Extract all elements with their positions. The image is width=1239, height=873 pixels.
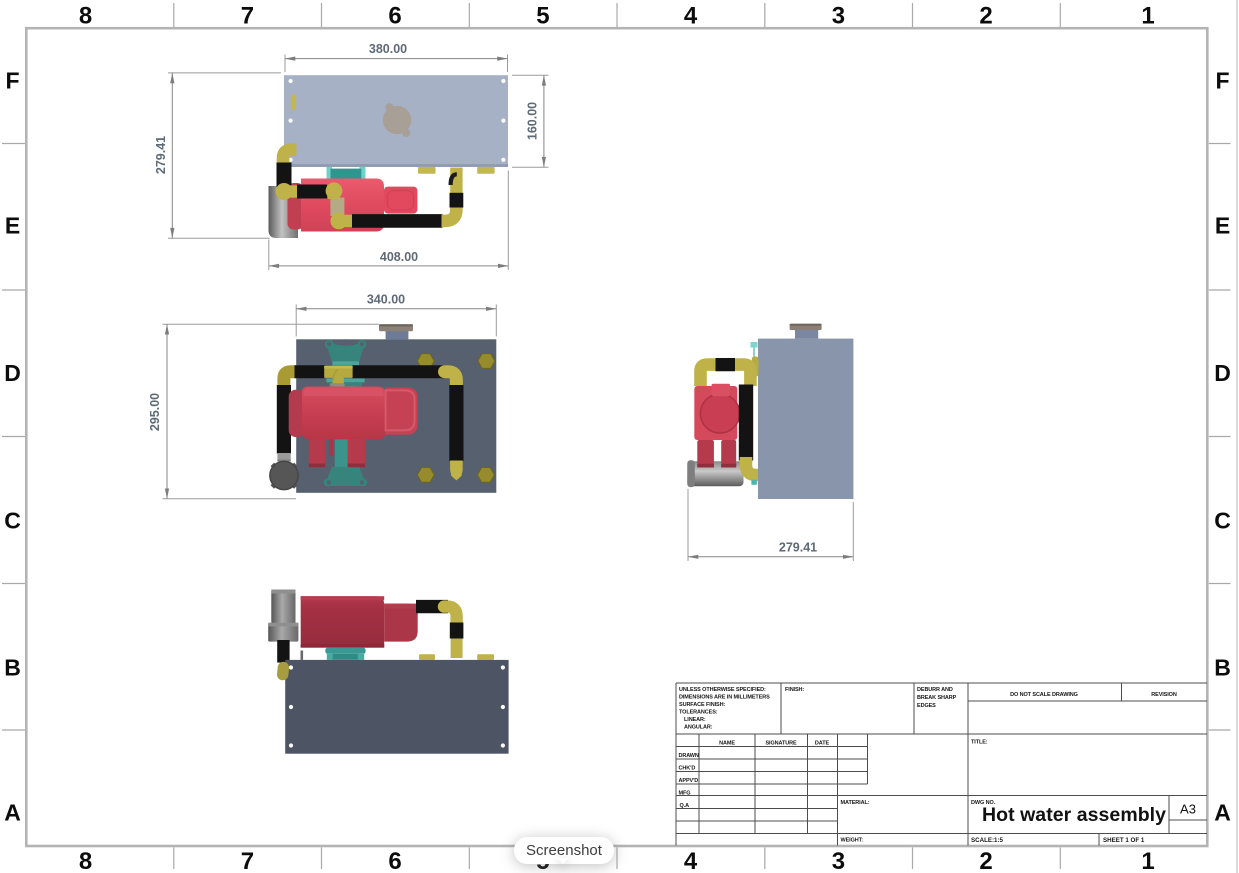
svg-text:1: 1 (1141, 3, 1154, 30)
svg-text:1: 1 (1141, 848, 1154, 873)
svg-text:DRAWN: DRAWN (679, 753, 699, 759)
svg-text:B: B (4, 655, 21, 681)
svg-text:2: 2 (979, 848, 992, 873)
svg-text:6: 6 (388, 848, 401, 873)
svg-text:A: A (1214, 800, 1231, 826)
svg-text:6: 6 (388, 3, 401, 30)
svg-text:BREAK SHARP: BREAK SHARP (917, 695, 957, 701)
svg-text:WEIGHT:: WEIGHT: (841, 838, 864, 844)
svg-text:ANGULAR:: ANGULAR: (684, 725, 713, 731)
svg-text:APPV'D: APPV'D (679, 778, 699, 784)
svg-text:5: 5 (536, 3, 549, 30)
svg-text:4: 4 (684, 848, 698, 873)
svg-text:Hot water assembly: Hot water assembly (982, 804, 1166, 826)
svg-text:NAME: NAME (719, 741, 735, 747)
svg-text:D: D (1214, 360, 1231, 386)
svg-text:SIGNATURE: SIGNATURE (765, 741, 797, 747)
svg-text:160.00: 160.00 (526, 102, 540, 140)
svg-text:LINEAR:: LINEAR: (684, 717, 706, 723)
svg-text:TITLE:: TITLE: (971, 740, 988, 746)
svg-text:A3: A3 (1180, 802, 1196, 817)
svg-text:Q.A: Q.A (680, 803, 690, 809)
svg-text:408.00: 408.00 (380, 250, 418, 264)
svg-text:SURFACE FINISH:: SURFACE FINISH: (679, 702, 725, 708)
svg-text:DEBURR AND: DEBURR AND (917, 687, 953, 693)
svg-text:2: 2 (979, 3, 992, 30)
svg-text:340.00: 340.00 (367, 292, 405, 306)
svg-text:DATE: DATE (815, 741, 830, 747)
svg-text:279.41: 279.41 (154, 136, 168, 174)
svg-text:F: F (1215, 68, 1229, 94)
svg-text:C: C (4, 508, 21, 534)
svg-text:D: D (4, 360, 21, 386)
svg-text:380.00: 380.00 (369, 42, 407, 56)
svg-text:3: 3 (832, 3, 845, 30)
svg-text:EDGES: EDGES (917, 703, 936, 709)
svg-text:279.41: 279.41 (779, 541, 817, 555)
svg-text:3: 3 (832, 848, 845, 873)
svg-text:7: 7 (241, 3, 254, 30)
svg-text:UNLESS OTHERWISE SPECIFIED:: UNLESS OTHERWISE SPECIFIED: (679, 687, 766, 693)
svg-text:MATERIAL:: MATERIAL: (841, 800, 870, 806)
svg-text:REVISION: REVISION (1151, 692, 1177, 698)
svg-text:TOLERANCES:: TOLERANCES: (679, 710, 718, 716)
svg-text:7: 7 (241, 848, 254, 873)
svg-text:A: A (4, 800, 21, 826)
svg-text:SHEET 1 OF 1: SHEET 1 OF 1 (1103, 837, 1145, 844)
svg-text:CHK'D: CHK'D (679, 766, 696, 772)
svg-text:FINISH:: FINISH: (785, 687, 804, 693)
svg-text:E: E (5, 213, 20, 239)
svg-text:E: E (1215, 213, 1230, 239)
svg-text:B: B (1214, 655, 1231, 681)
svg-text:4: 4 (684, 3, 698, 30)
svg-text:MFG: MFG (679, 791, 691, 797)
svg-text:DO NOT SCALE DRAWING: DO NOT SCALE DRAWING (1010, 692, 1078, 698)
svg-text:295.00: 295.00 (148, 393, 162, 431)
svg-text:C: C (1214, 508, 1231, 534)
svg-text:8: 8 (79, 848, 92, 873)
svg-text:8: 8 (79, 3, 92, 30)
svg-text:SCALE:1:5: SCALE:1:5 (971, 837, 1004, 844)
svg-text:F: F (5, 68, 19, 94)
svg-text:DIMENSIONS ARE IN MILLIMETERS: DIMENSIONS ARE IN MILLIMETERS (679, 695, 770, 701)
